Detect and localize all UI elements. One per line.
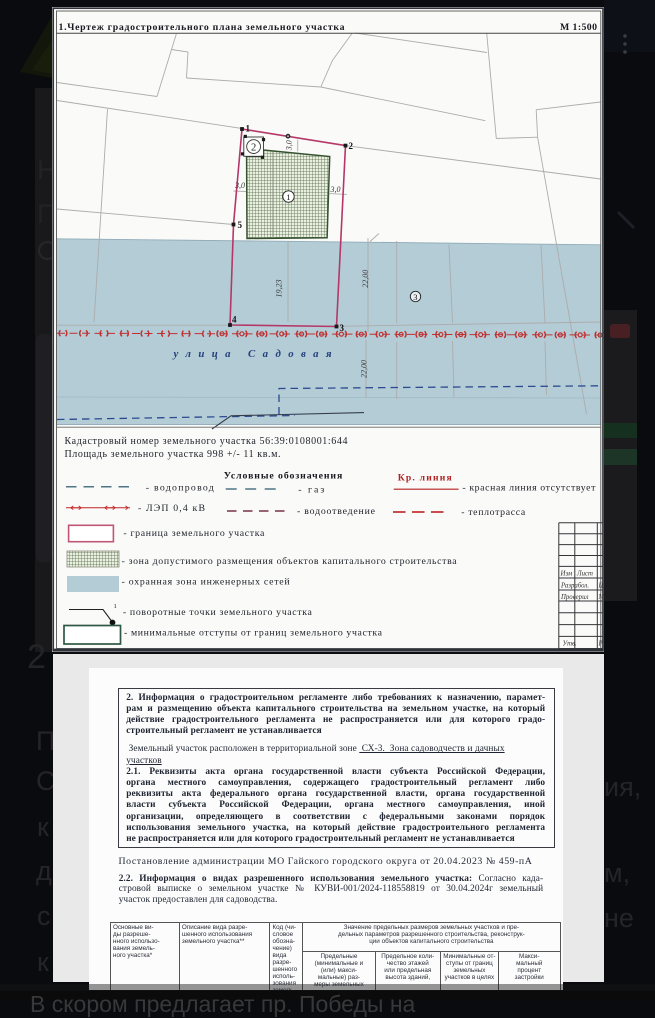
svg-text:Условные обозначения: Условные обозначения — [224, 471, 343, 482]
svg-text:- водопровод: - водопровод — [146, 483, 214, 494]
svg-text:Р: Р — [598, 640, 603, 647]
svg-text:Разрабол.: Разрабол. — [560, 582, 589, 589]
svg-text:Площадь земельного участка 998: Площадь земельного участка 998 +/- 11 кв… — [65, 449, 281, 460]
svg-text:- газ: - газ — [298, 485, 324, 496]
svg-text:М: М — [598, 594, 605, 601]
svg-text:Лист: Лист — [576, 571, 593, 578]
svg-text:3: 3 — [413, 292, 417, 302]
svg-text:- минимальные отступы от грани: - минимальные отступы от границ земельно… — [124, 628, 383, 639]
svg-text:1: 1 — [246, 124, 251, 134]
svg-text:4: 4 — [232, 315, 237, 325]
svg-text:Изм: Изм — [560, 571, 573, 578]
svg-text:- поворотные точки земельного: - поворотные точки земельного участка — [123, 607, 313, 618]
svg-text:- ЛЭП 0,4 кВ: - ЛЭП 0,4 кВ — [138, 503, 205, 514]
svg-text:2: 2 — [349, 141, 354, 151]
svg-text:- зона допустимого размещения: - зона допустимого размещения объектов к… — [122, 556, 458, 567]
svg-text:Кадастровый номер земельного у: Кадастровый номер земельного участка 56:… — [65, 436, 348, 447]
svg-text:1: 1 — [114, 603, 117, 610]
svg-text:3: 3 — [340, 323, 345, 333]
svg-text:3,0: 3,0 — [234, 181, 245, 190]
svg-text:Проверил: Проверил — [560, 594, 588, 601]
svg-text:19,23: 19,23 — [275, 280, 284, 298]
svg-text:Кр. линия: Кр. линия — [398, 473, 452, 484]
svg-text:1: 1 — [286, 192, 290, 202]
svg-text:5: 5 — [238, 220, 243, 230]
svg-text:- охранная зона инженерных сет: - охранная зона инженерных сетей — [122, 577, 291, 588]
svg-text:- граница земельного участка: - граница земельного участка — [123, 528, 265, 539]
svg-text:М 1:500: М 1:500 — [560, 22, 597, 33]
svg-text:- водоотведение: - водоотведение — [297, 506, 376, 517]
svg-text:- теплотрасса: - теплотрасса — [461, 507, 526, 518]
svg-text:2: 2 — [251, 143, 256, 154]
svg-text:1.Чертеж градостроительного пл: 1.Чертеж градостроительного плана земель… — [59, 22, 345, 33]
svg-text:Ш: Ш — [598, 582, 605, 589]
svg-text:Утв.: Утв. — [563, 640, 577, 647]
svg-text:22,00: 22,00 — [360, 360, 369, 378]
svg-text:3,0: 3,0 — [330, 185, 341, 194]
svg-text:22,00: 22,00 — [361, 270, 370, 288]
svg-text:- красная линия отсутствует: - красная линия отсутствует — [462, 483, 596, 494]
svg-text:3,0: 3,0 — [285, 140, 294, 151]
